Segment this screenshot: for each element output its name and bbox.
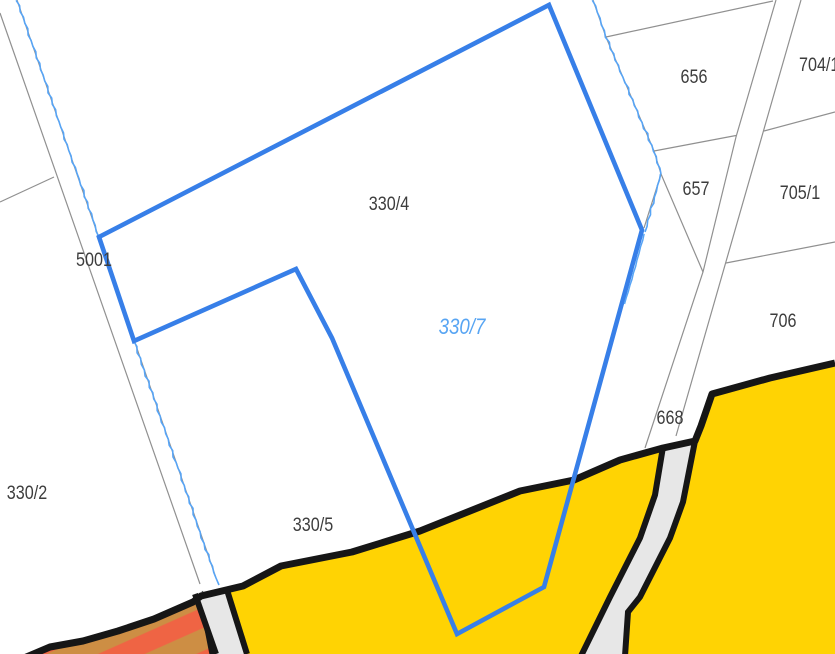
svg-text:657: 657 bbox=[683, 178, 710, 200]
svg-text:668: 668 bbox=[657, 407, 684, 429]
svg-text:704/1: 704/1 bbox=[799, 54, 835, 76]
svg-text:656: 656 bbox=[681, 66, 708, 88]
svg-text:706: 706 bbox=[770, 310, 797, 332]
svg-text:330/5: 330/5 bbox=[293, 514, 334, 536]
svg-text:330/4: 330/4 bbox=[369, 193, 410, 215]
svg-text:705/1: 705/1 bbox=[780, 182, 820, 204]
svg-text:330/7: 330/7 bbox=[439, 316, 486, 340]
svg-text:330/2: 330/2 bbox=[7, 482, 47, 504]
svg-text:5001: 5001 bbox=[76, 249, 112, 271]
